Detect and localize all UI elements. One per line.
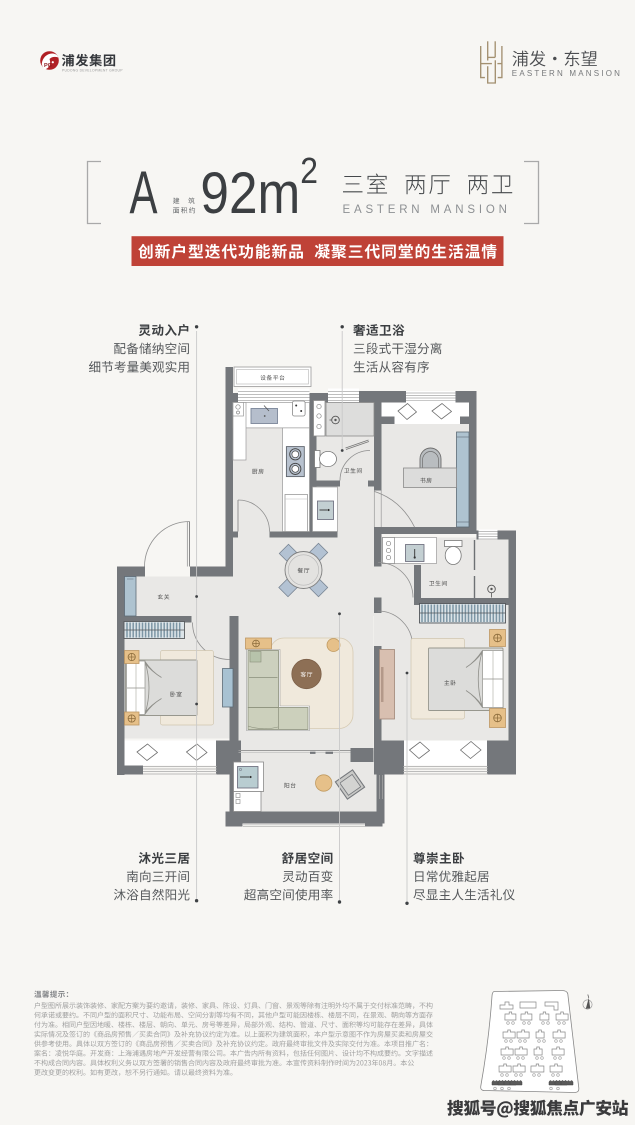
- svg-text:PG: PG: [44, 63, 52, 69]
- svg-text:92m: 92m: [200, 160, 300, 226]
- svg-text:EASTERN MANSION: EASTERN MANSION: [343, 204, 511, 216]
- svg-text:PUDONG DEVELOPMENT GROUP: PUDONG DEVELOPMENT GROUP: [62, 69, 123, 73]
- svg-text:A: A: [130, 159, 158, 226]
- svg-text:2: 2: [300, 151, 318, 191]
- svg-text:EASTERN MANSION: EASTERN MANSION: [512, 69, 622, 78]
